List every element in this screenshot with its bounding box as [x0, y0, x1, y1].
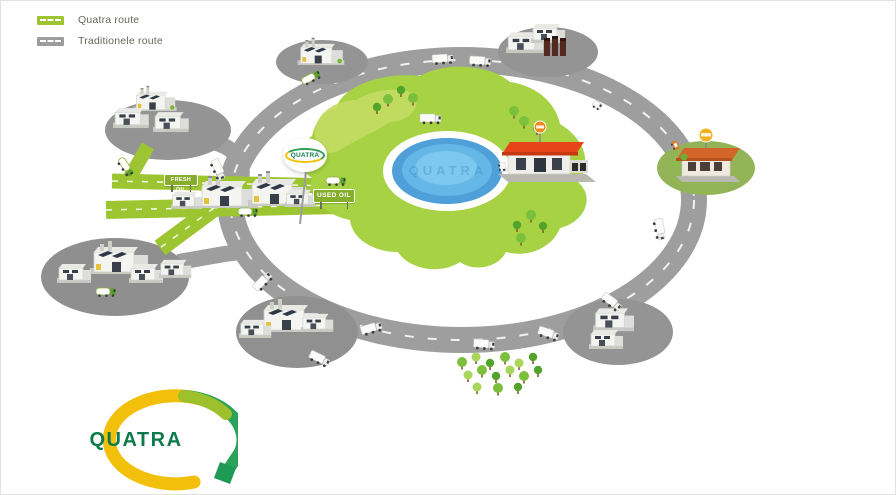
quatra-plant-building: [171, 192, 202, 209]
lake-watermark: QUATRA: [392, 163, 504, 178]
sign-leg: [320, 202, 322, 209]
quatra-truck-icon: [238, 208, 258, 217]
tree-icon: [514, 383, 522, 394]
quatra-truck-icon: [96, 288, 116, 297]
used-oil-sign-text: USED OIL: [317, 192, 351, 199]
connector-road-bottom-left: [178, 252, 247, 262]
tree-icon: [472, 353, 481, 365]
tree-icon: [519, 371, 529, 384]
tree-icon: [534, 366, 542, 377]
tree-icon: [477, 365, 487, 378]
traditionele-route-swatch: [37, 37, 64, 46]
quatra-route-swatch: [37, 16, 64, 25]
sign-leg: [347, 202, 349, 209]
logo-green-swoosh-highlight: [184, 396, 226, 414]
quatra-truck-icon: [326, 177, 346, 186]
quatra-route-diagram: Quatra route Traditionele route QUATRA F…: [0, 0, 896, 495]
tree-icon: [464, 371, 473, 383]
legend-item-quatra-route: Quatra route: [37, 14, 163, 26]
sign-leg: [171, 185, 173, 192]
silos: [544, 36, 566, 56]
tree-icon: [500, 352, 510, 365]
legend: Quatra route Traditionele route: [37, 14, 163, 56]
legend-item-traditionele-route: Traditionele route: [37, 35, 163, 47]
truck-icon: [652, 218, 666, 241]
tree-icon: [492, 372, 500, 383]
tree-icon: [515, 359, 524, 371]
factory-building: [133, 86, 176, 111]
quatra-balloon-sign: QUATRA: [283, 138, 327, 172]
used-oil-sign: USED OIL: [313, 189, 355, 203]
tree-icon: [529, 353, 537, 364]
tree-icon: [493, 383, 503, 396]
truck-icon: [432, 54, 454, 66]
sign-leg: [190, 185, 192, 192]
tree-icon: [486, 359, 494, 370]
truck-icon: [420, 114, 441, 124]
quatra-logo: QUATRA: [48, 383, 238, 493]
legend-label: Traditionele route: [78, 35, 163, 47]
tree-icon: [473, 383, 482, 395]
legend-label: Quatra route: [78, 14, 139, 26]
tree-icon: [457, 357, 467, 370]
quatra-wordmark: QUATRA: [76, 429, 196, 452]
tree-icon: [506, 366, 515, 378]
fresh-oil-sign: FRESH OIL: [164, 174, 198, 186]
quatra-balloon-text: QUATRA: [285, 148, 326, 163]
